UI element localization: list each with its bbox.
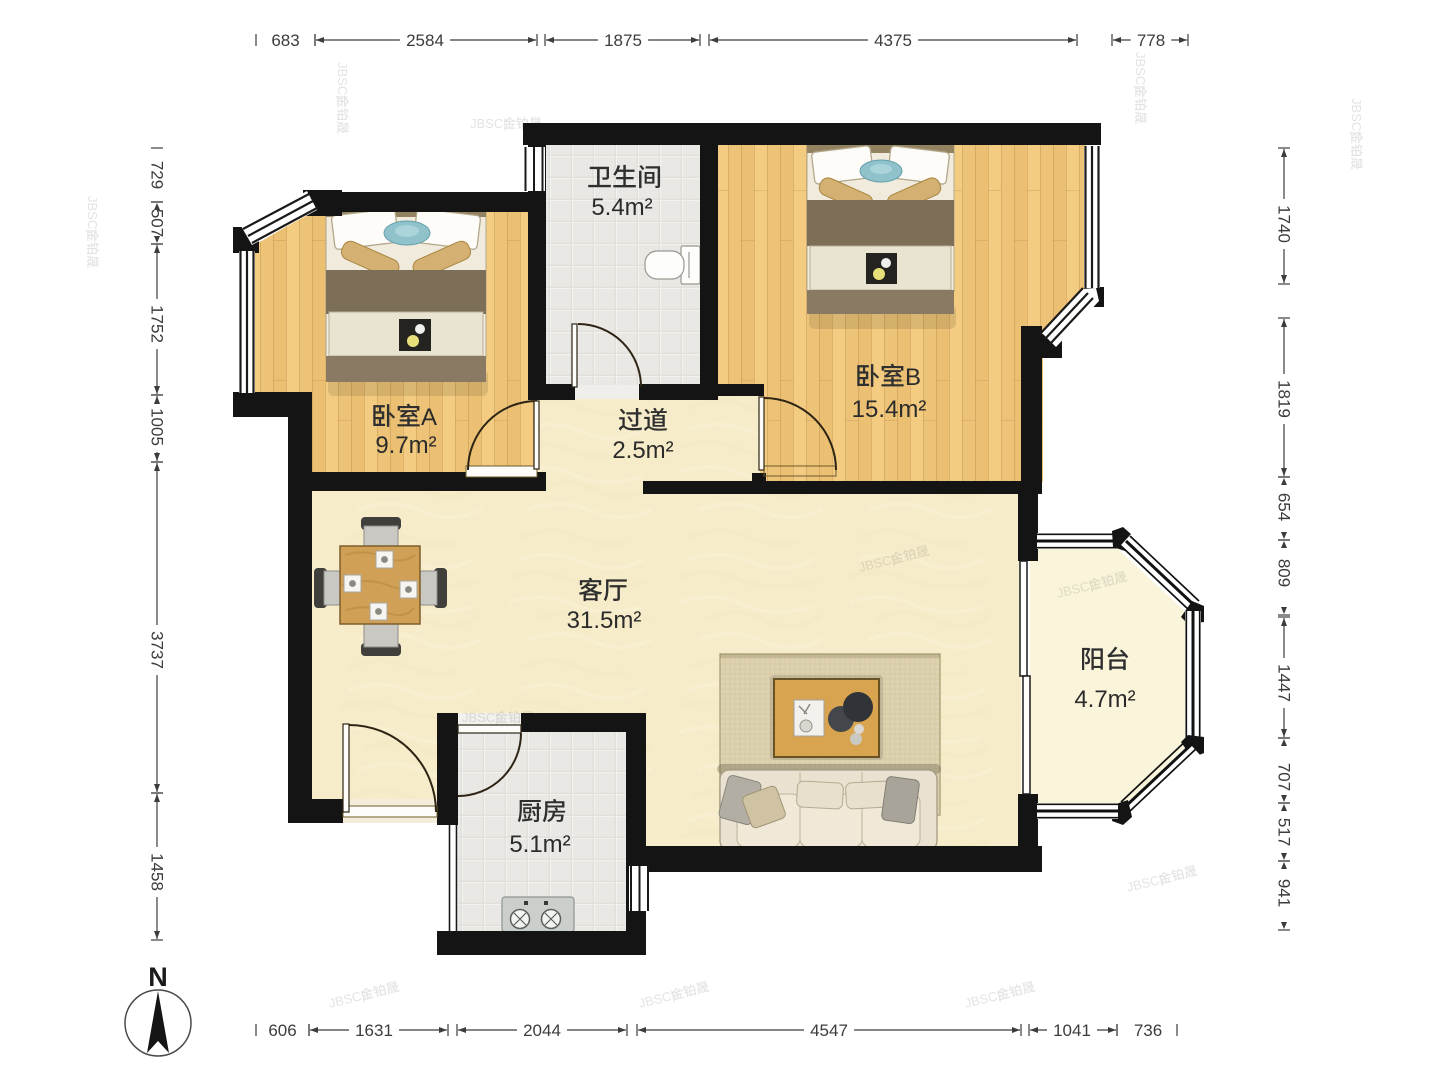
svg-text:1740: 1740 — [1275, 205, 1294, 243]
svg-text:JBSC|: JBSC| — [1349, 98, 1364, 135]
svg-text:1447: 1447 — [1275, 664, 1294, 702]
svg-text:A: A — [421, 404, 437, 431]
svg-text:JBSC|: JBSC| — [462, 710, 499, 725]
svg-text:1819: 1819 — [1275, 380, 1294, 418]
svg-text:517: 517 — [1275, 818, 1294, 846]
svg-text:2044: 2044 — [523, 1021, 561, 1040]
svg-text:5.4m²: 5.4m² — [591, 194, 652, 221]
svg-text:606: 606 — [268, 1021, 296, 1040]
svg-text:778: 778 — [1137, 31, 1165, 50]
svg-text:707: 707 — [1275, 763, 1294, 791]
svg-text:1041: 1041 — [1053, 1021, 1091, 1040]
svg-text:1631: 1631 — [355, 1021, 393, 1040]
svg-text:507: 507 — [148, 209, 167, 237]
svg-text:9.7m²: 9.7m² — [375, 432, 436, 459]
svg-text:JBSC|: JBSC| — [1133, 52, 1148, 89]
svg-text:JBSC|: JBSC| — [85, 196, 100, 233]
svg-text:B: B — [905, 364, 921, 391]
svg-text:941: 941 — [1275, 879, 1294, 907]
svg-text:1752: 1752 — [148, 305, 167, 343]
svg-text:809: 809 — [1275, 559, 1294, 587]
svg-text:4375: 4375 — [874, 31, 912, 50]
svg-text:5.1m²: 5.1m² — [509, 831, 570, 858]
svg-text:15.4m²: 15.4m² — [852, 396, 927, 423]
svg-text:1875: 1875 — [604, 31, 642, 50]
svg-text:2584: 2584 — [406, 31, 444, 50]
svg-text:4.7m²: 4.7m² — [1074, 686, 1135, 713]
svg-text:2.5m²: 2.5m² — [612, 437, 673, 464]
svg-text:31.5m²: 31.5m² — [567, 607, 642, 634]
svg-text:JBSC|: JBSC| — [470, 116, 507, 131]
svg-text:3737: 3737 — [148, 631, 167, 669]
svg-text:683: 683 — [271, 31, 299, 50]
svg-text:1458: 1458 — [148, 853, 167, 891]
svg-text:4547: 4547 — [810, 1021, 848, 1040]
svg-text:736: 736 — [1134, 1021, 1162, 1040]
svg-text:JBSC|: JBSC| — [335, 62, 350, 99]
svg-text:729: 729 — [148, 161, 167, 189]
svg-text:N: N — [148, 962, 168, 992]
svg-text:1005: 1005 — [148, 408, 167, 446]
svg-text:654: 654 — [1275, 493, 1294, 521]
